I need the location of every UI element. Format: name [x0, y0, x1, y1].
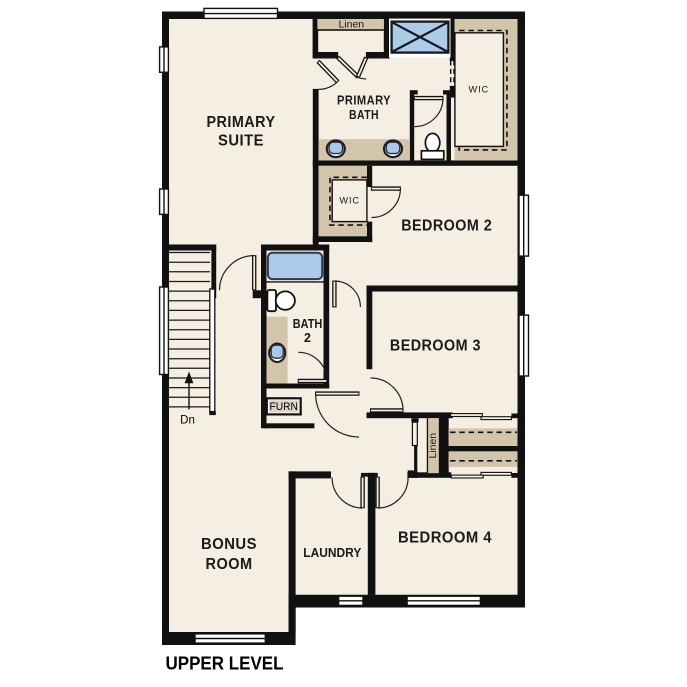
- svg-text:FURN: FURN: [269, 401, 298, 413]
- svg-text:Linen: Linen: [338, 19, 364, 31]
- svg-text:LAUNDRY: LAUNDRY: [303, 545, 361, 560]
- svg-text:PRIMARY: PRIMARY: [337, 93, 391, 107]
- svg-text:PRIMARY: PRIMARY: [207, 114, 276, 131]
- svg-text:BATH: BATH: [293, 317, 323, 331]
- svg-text:WIC: WIC: [469, 85, 490, 95]
- svg-text:BEDROOM 4: BEDROOM 4: [398, 530, 492, 547]
- svg-text:2: 2: [304, 331, 311, 345]
- svg-text:SUITE: SUITE: [218, 132, 264, 149]
- svg-text:BONUS: BONUS: [201, 536, 257, 553]
- svg-text:WIC: WIC: [339, 196, 360, 206]
- svg-text:Linen: Linen: [427, 433, 439, 459]
- svg-text:BEDROOM 2: BEDROOM 2: [401, 218, 492, 235]
- svg-text:Dn: Dn: [180, 415, 195, 427]
- svg-text:ROOM: ROOM: [206, 556, 253, 573]
- svg-text:BEDROOM 3: BEDROOM 3: [390, 337, 481, 354]
- svg-text:UPPER LEVEL: UPPER LEVEL: [166, 653, 284, 674]
- svg-text:BATH: BATH: [349, 108, 379, 122]
